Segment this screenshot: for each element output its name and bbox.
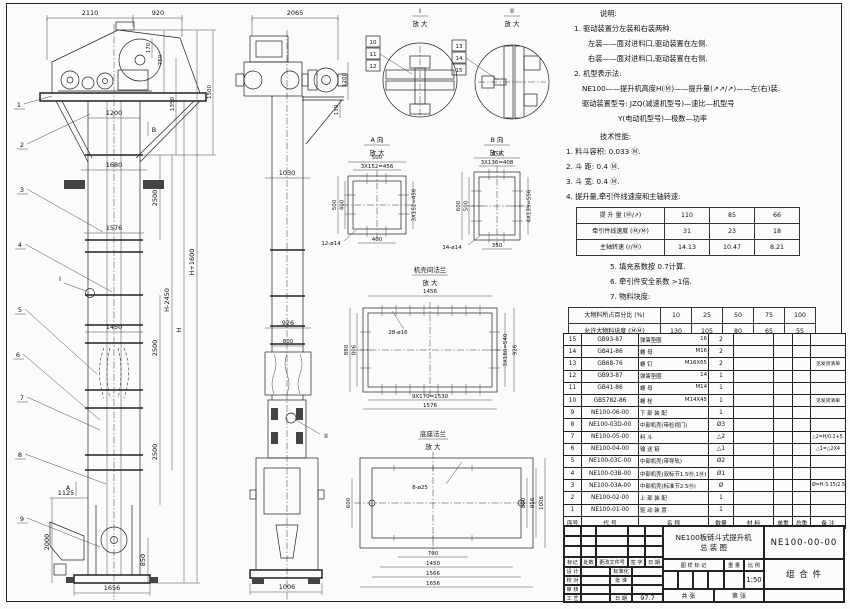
dim-bs-700: 700 (428, 551, 439, 557)
balloon-10: 10 (370, 40, 377, 46)
dim-2065: 2065 (287, 9, 304, 17)
detail-bs-title: 底座法兰 (420, 429, 447, 438)
sign-process: 工 艺 (564, 594, 581, 602)
dim-850: 850 (139, 554, 147, 566)
dim-fl-880: 880 (344, 344, 350, 355)
rev-cell (645, 536, 663, 546)
rev-header-mark: 标记 (564, 557, 581, 567)
sign-approve: 批 准 (610, 576, 632, 585)
sign-cell (610, 585, 632, 594)
drawing-canvas: 2110 920 (0, 0, 565, 609)
detail-ii-subtitle: 放 大 (504, 19, 520, 28)
stamp-cell (663, 571, 678, 589)
detail-view-ii: II 放 大 13 14 15 (452, 7, 549, 119)
dim-800: 800 (283, 339, 294, 345)
tech-item: 5. 填充系数按 0.7计算. (610, 259, 843, 274)
balloon-7: 7 (20, 394, 24, 402)
sign-cell (632, 576, 663, 585)
tech-item: 7. 物料块度: (610, 289, 843, 304)
dim-2500-b: 2500 (151, 340, 159, 357)
dim-a-400-bottom: 400 (372, 237, 383, 243)
dim-2500-a: 2500 (151, 190, 159, 207)
boot-section-front (50, 505, 158, 583)
dim-h: H (175, 327, 183, 332)
tech-item: 6. 牵引件安全系数 >1倍. (610, 274, 843, 289)
balloon-12: 12 (370, 64, 377, 70)
dim-1006: 1006 (279, 583, 296, 591)
dim-fl-926: 926 (513, 344, 519, 355)
rev-cell (581, 546, 596, 557)
detail-fl-subtitle: 放 大 (422, 278, 438, 287)
sign-design: 设 计 (564, 567, 581, 576)
sign-check: 校 对 (564, 576, 581, 585)
dim-920: 920 (152, 9, 164, 17)
bom-row: 6 NE100-04-00 输 送 链 △1 △1=△2X4 (564, 443, 846, 455)
drawing-title-line1: NE100板链斗式提升机 (675, 533, 751, 543)
drawing-number: NE100-00-00 (764, 526, 844, 559)
rev-cell (645, 546, 663, 557)
drawing-sheet: 2110 920 (0, 0, 850, 609)
dim-170: 170 (146, 42, 152, 53)
sheet-number: 第 张 (714, 589, 764, 602)
stamp-mark-label: 图 样 标 记 (663, 559, 724, 571)
dim-fl-806: 806 (352, 344, 358, 355)
dim-1200: 1200 (106, 109, 123, 117)
holes-bs: 8-ø25 (412, 485, 428, 491)
rev-cell (645, 526, 663, 536)
stamp-cell (693, 571, 708, 589)
balloon-13: 13 (456, 44, 463, 50)
dim-bs-916: 916 (530, 497, 536, 508)
dim-1500: 1500 (207, 85, 213, 99)
rev-header-date: 日 期 (645, 557, 663, 567)
sign-cell (632, 585, 663, 594)
note-line: 1. 驱动装置分左装和右装两种. (574, 21, 843, 36)
note-line: 2. 机型表示法: (574, 66, 843, 81)
bom-row: 3 NE100-03A-00 中部机壳(标准节2.5Ⓜ) Ø Ø=H-3.15/… (564, 480, 846, 492)
marker-b: B (152, 126, 156, 134)
tech-item: 3. 斗 宽: 0.4 Ⓜ. (566, 174, 843, 189)
sign-cell (581, 567, 610, 576)
tech-item: 1. 料斗容积: 0.033 Ⓜ. (566, 144, 843, 159)
dim-1350: 1350 (170, 97, 176, 111)
note-line: 驱动装置型号: JZQ(减速机型号)—速比—机型号 (582, 96, 843, 111)
dim-2110: 2110 (82, 9, 99, 17)
bom-row: 15 GB93-87 弹簧垫圈16 2 (564, 334, 846, 346)
bom-table: 15 GB93-87 弹簧垫圈16 2 14 GB41-86 螺 母M16 2 (563, 333, 846, 529)
balloon-9: 9 (20, 515, 24, 523)
detail-view-base-flange: 底座法兰 放 大 8-ø25 600 800 916 1006 700 1450 (346, 429, 545, 587)
rev-cell (564, 546, 581, 557)
bom-row: 5 NE100-03C-00 中部机壳(带导轨) Ø2 (564, 455, 846, 467)
balloon-14: 14 (456, 56, 463, 62)
balloon-4: 4 (18, 241, 22, 249)
dim-b-500: 500 (464, 200, 470, 211)
marker-i: I (59, 275, 61, 283)
note-line: NE100——提升机高度H(Ⓜ)——提升量(↗↗/↗)——左(右)装. (582, 81, 843, 96)
dim-750: 750 (158, 54, 164, 65)
balloon-11: 11 (370, 52, 377, 58)
dim-b-556: 4X139=556 (527, 189, 533, 222)
rev-cell (596, 546, 628, 557)
scale-value: 1:50 (744, 571, 764, 589)
holes-b: 14-ø14 (442, 245, 462, 251)
scale-label: 比 例 (744, 559, 764, 571)
sign-standard: 标准化 (610, 567, 632, 576)
dim-1030: 1030 (279, 169, 296, 177)
casing-column-side (265, 30, 311, 600)
sign-date-value: 97.7 (632, 594, 663, 602)
bom-row: 12 GB93-87 弹簧垫圈14 1 (564, 370, 846, 382)
detail-fl-title: 机壳间法兰 (414, 265, 447, 274)
rev-cell (596, 536, 628, 546)
bom-row: 1 NE100-01-00 驱 动 装 置 1 (564, 504, 846, 516)
sign-cell (581, 576, 610, 585)
balloon-1: 1 (17, 101, 21, 109)
dim-bs-1656: 1656 (426, 581, 440, 587)
rev-cell (628, 526, 645, 536)
dim-a-400-left: 400 (340, 199, 346, 210)
rev-cell (564, 536, 581, 546)
bom-row: 2 NE100-02-00 上 部 装 配 1 (564, 492, 846, 504)
tech-item: 2. 斗 距: 0.4 Ⓜ. (566, 159, 843, 174)
detail-view-b: B 向 放 大 450 3X136=408 600 500 350 4X139=… (442, 135, 532, 251)
bom-row: 9 NE100-06-00 下 部 装 配 1 (564, 407, 846, 419)
drawing-title: NE100板链斗式提升机 总 装 图 (663, 526, 764, 559)
balloon-3: 3 (20, 186, 24, 194)
detail-i-title: I (419, 7, 421, 15)
rev-cell (581, 536, 596, 546)
balloon-5: 5 (18, 306, 22, 314)
dim-h-minus-2450: H-2450 (163, 288, 171, 312)
dim-b-600: 600 (456, 200, 462, 211)
dim-fl-1456: 1456 (423, 289, 437, 295)
weight-value (724, 571, 744, 589)
weight-label: 重 量 (724, 559, 744, 571)
bom-row: 4 NE100-03B-00 中部机壳(双标节1.5Ⓜ,1Ⓜ) Ø1 (564, 468, 846, 480)
title-block: 标记 处数 更改文件号 签 字 日 期 设 计 标准化 校 对 批 准 审 核 … (563, 525, 845, 603)
head-drive-unit (40, 22, 206, 162)
tech-item: 4. 提升量,牵引件线速度和主轴转速: (566, 189, 843, 204)
detail-b-title: B 向 (490, 135, 503, 144)
dim-bs-800: 800 (521, 497, 527, 508)
note-line: 右装——面对进料口,驱动装置在右侧. (588, 51, 843, 66)
rev-cell (628, 536, 645, 546)
rev-cell (564, 526, 581, 536)
dim-a-456-top: 3X152=456 (361, 164, 394, 170)
rev-header-count: 处数 (581, 557, 596, 567)
side-elevation-view: 2065 1200 130 (236, 9, 348, 600)
note-line: Y(电动机型号)—极数—功率 (618, 111, 843, 126)
holes-a: 12-ø14 (321, 241, 341, 247)
dim-1680: 1680 (106, 161, 123, 169)
drawing-title-line2: 总 装 图 (700, 543, 727, 553)
rev-header-sign: 签 字 (628, 557, 645, 567)
holes-fl: 28-ø16 (388, 330, 408, 336)
balloon-8: 8 (18, 451, 22, 459)
dim-b-450: 450 (492, 152, 503, 158)
rev-cell (581, 526, 596, 536)
dim-bs-600: 600 (346, 497, 352, 508)
bom-row: 11 GB41-86 螺 母M14 1 (564, 382, 846, 394)
part-balloons-left: 1 2 3 4 5 6 7 8 9 (13, 96, 112, 547)
sheet-total: 共 张 (663, 589, 714, 602)
detail-view-a: A 向 放 大 500 3X152=456 500 400 400 3X152=… (321, 135, 417, 247)
detail-view-casing-flange: 机壳间法兰 放 大 1456 28-ø16 880 806 3X180=540 … (344, 265, 519, 409)
balloon-15: 15 (456, 68, 463, 74)
detail-bs-subtitle: 放 大 (425, 442, 441, 451)
bom-row: 14 GB41-86 螺 母M16 2 (564, 346, 846, 358)
rev-cell (628, 546, 645, 557)
dim-b-408: 3X136=408 (481, 160, 514, 166)
dim-a-456-right: 3X152=456 (412, 188, 418, 221)
dim-a-500-left: 500 (332, 199, 338, 210)
table-row: 牵引件线速度 (Ⓜ/Ⓜ) 31 23 18 (577, 224, 800, 240)
detail-a-title: A 向 (370, 135, 383, 144)
sign-audit: 审 核 (564, 585, 581, 594)
dim-1450: 1450 (106, 323, 123, 331)
dim-2500-c: 2500 (151, 444, 159, 461)
dim-2000: 2000 (43, 534, 51, 551)
empty-cell (764, 589, 844, 602)
stamp-cell (708, 571, 724, 589)
dim-1576: 1576 (106, 224, 123, 232)
rev-header-docno: 更改文件号 (596, 557, 628, 567)
tech-title: 技术性能: (600, 129, 843, 144)
stamp-cell (678, 571, 693, 589)
table-row: 提 升 量 (Ⓜ/↗) 110 85 66 (577, 208, 800, 224)
detail-ii-title: II (510, 7, 514, 15)
dim-bs-1450: 1450 (426, 561, 440, 567)
sign-date-label: 日 期 (610, 594, 632, 602)
sign-cell (581, 594, 610, 602)
bom-row: 13 GB68-76 螺 钉M16X65 2 见发货清单 (564, 358, 846, 370)
note-line: 左装——面对进料口,驱动装置在左侧. (588, 36, 843, 51)
dim-bs-1006: 1006 (539, 496, 545, 510)
sign-cell (581, 585, 610, 594)
bom-row: 10 GB5782-86 螺 栓M14X45 1 见发货清单 (564, 394, 846, 406)
capacity-speed-table: 提 升 量 (Ⓜ/↗) 110 85 66 牵引件线速度 (Ⓜ/Ⓜ) 31 23… (576, 207, 800, 256)
detail-view-i: I 放 大 10 11 12 (366, 7, 457, 117)
dim-bs-1566: 1566 (426, 571, 440, 577)
left-elevation-view: 2110 920 (13, 9, 216, 600)
dim-b-350: 350 (492, 243, 503, 249)
sign-cell (632, 567, 663, 576)
head-side (236, 36, 347, 144)
table-row: 大物料所占百分比 (%) 10 25 50 75 100 (569, 308, 816, 324)
dim-fl-1530: 9X170=1530 (412, 394, 449, 400)
dim-fl-1576: 1576 (423, 403, 437, 409)
bom-row: 8 NE100-03D-00 中部机壳(带检视门) Ø3 (564, 419, 846, 431)
dim-a-500-top: 500 (372, 155, 383, 161)
rev-cell (596, 526, 628, 536)
balloon-6: 6 (16, 351, 20, 359)
table-row: 主轴转速 (r/Ⓜ) 14.13 10.47 8.21 (577, 240, 800, 256)
balloon-2: 2 (20, 141, 24, 149)
detail-i-subtitle: 放 大 (412, 19, 428, 28)
dim-130: 130 (334, 104, 340, 115)
dim-926: 926 (282, 319, 294, 327)
bom-row: 7 NE100-05-00 料 斗 △2 △2=H/0.2+5.75 (564, 431, 846, 443)
notes-title: 说明: (600, 6, 843, 21)
dim-fl-540: 3X180=540 (503, 333, 509, 366)
dim-1656: 1656 (104, 584, 121, 592)
dim-h-plus-1600: H+1600 (188, 249, 196, 276)
notes-panel: 说明: 1. 驱动装置分左装和右装两种. 左装——面对进料口,驱动装置在左侧. … (566, 6, 843, 343)
part-category: 组 合 件 (764, 559, 844, 589)
marker-a: A (66, 484, 71, 492)
marker-ii: II (324, 432, 328, 440)
dim-1200-side: 1200 (342, 73, 348, 87)
